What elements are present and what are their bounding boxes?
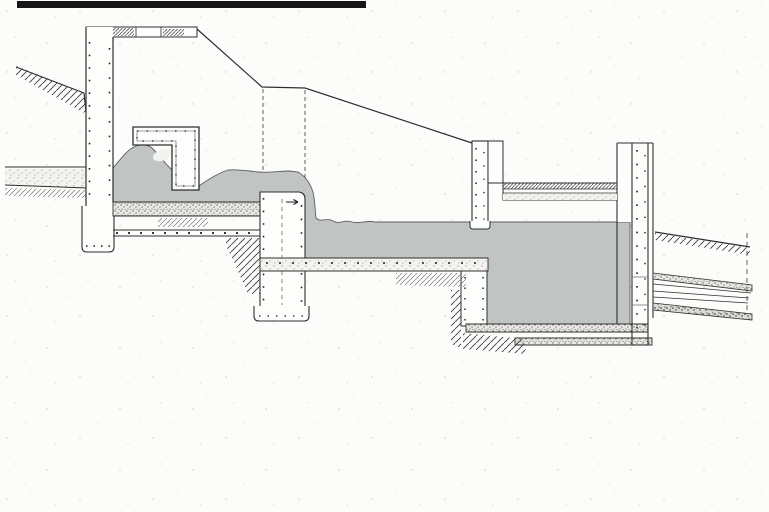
baffle-headwall	[488, 141, 503, 183]
service-deck-stipple	[503, 194, 617, 200]
engineering-drawing	[0, 0, 769, 512]
inlet-wall-footing	[82, 206, 114, 252]
soil-hatch-below-apron	[396, 273, 466, 287]
basin-floor-slab	[466, 324, 648, 332]
baffle-wall-footing	[470, 221, 490, 229]
tailwall-body-upper	[617, 143, 632, 222]
chute-floor-slab	[113, 202, 260, 216]
service-deck-hatch	[503, 183, 617, 189]
apron-slab	[260, 258, 488, 271]
soil-hatch-basin-left	[451, 290, 461, 348]
tailwall-body-lower	[632, 143, 653, 345]
soil-hatch-under-floor	[158, 218, 208, 227]
sheet-top-black-bar	[17, 1, 366, 8]
drop-wall-body	[260, 192, 305, 308]
baffle-wall	[472, 141, 488, 227]
inlet-deck-hatch-right	[163, 29, 184, 36]
drop-wall-footing	[254, 306, 309, 321]
drawing-sheet	[0, 0, 769, 512]
